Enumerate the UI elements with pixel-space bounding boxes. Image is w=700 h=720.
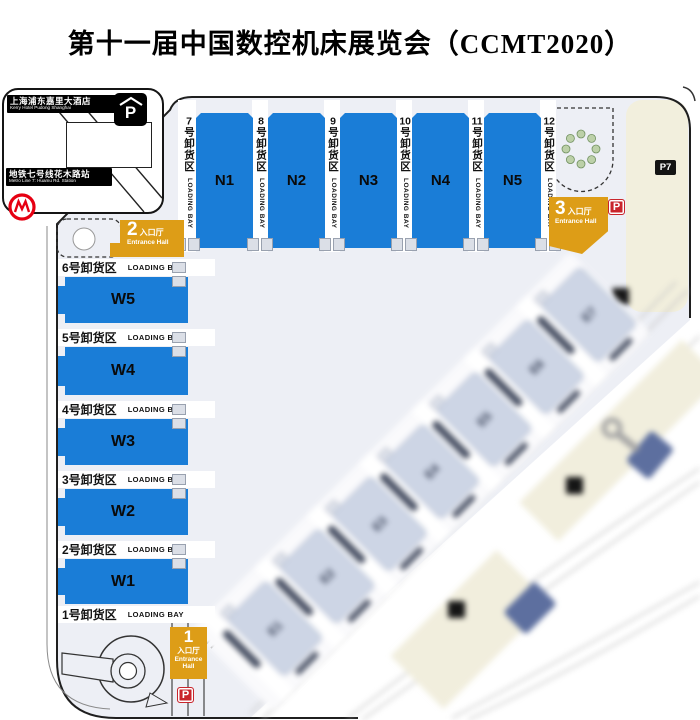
metro-label: 地铁七号线花木路站 Metro Line 7: Huamu Rd. Statio… [6, 168, 112, 186]
hall-label: E1 [265, 618, 285, 638]
hotel-name-en: Kerry Hotel Pudong Shanghai [10, 106, 114, 111]
page-title: 第十一届中国数控机床展览会（CCMT2020） [0, 22, 700, 61]
loading-bay-3: 3号卸货区LOADING BAY [62, 472, 184, 487]
parking-badge-entrance1: P [177, 687, 194, 703]
dock-tab [319, 238, 331, 251]
hall-label: E2 [317, 566, 337, 586]
dock-tab [172, 544, 186, 555]
dock-tab [261, 238, 273, 251]
hall-w5: W5 [58, 277, 188, 323]
dock-tab [172, 276, 186, 287]
loading-bay-4: 4号卸货区LOADING BAY [62, 402, 184, 417]
loading-bay-9: 9号卸货区LOADING BAY [325, 116, 341, 228]
dock-tab [172, 332, 186, 343]
dock-tab [172, 474, 186, 485]
dock-tab [172, 488, 186, 499]
hall-n1: N1 [196, 113, 253, 248]
hall-w1: W1 [58, 559, 188, 604]
hall-n2: N2 [268, 113, 325, 248]
hotel-metro-legend: 上海浦东嘉里大酒店 Kerry Hotel Pudong Shanghai P … [2, 88, 164, 214]
dock-tab [405, 238, 417, 251]
blurred-parking-sign [566, 477, 583, 494]
hotel-building [66, 122, 152, 168]
parking-letter: P [125, 104, 136, 121]
entrance-hall-2: 2入口厅 Entrance Hall [120, 220, 184, 257]
entrance-hall-1: 1 入口厅 Entrance Hall [170, 627, 207, 679]
hall-n3: N3 [340, 113, 397, 248]
hall-w2: W2 [58, 489, 188, 535]
loading-bay-11: 11号卸货区LOADING BAY [469, 116, 485, 228]
hall-label: E4 [422, 461, 442, 481]
dock-tab [188, 238, 200, 251]
loading-bay-10: 10号卸货区LOADING BAY [397, 116, 413, 228]
loading-bay-7: 7号卸货区LOADING BAY [181, 116, 197, 228]
shanghai-metro-logo [7, 192, 37, 222]
hall-label: E3 [370, 514, 390, 534]
loading-bay-8: 8号卸货区LOADING BAY [253, 116, 269, 228]
ramp-loop-icon [598, 412, 644, 460]
hall-n4: N4 [412, 113, 469, 248]
dock-tab [172, 558, 186, 569]
parking-badge-p7: P7 [655, 160, 676, 175]
hotel-label: 上海浦东嘉里大酒店 Kerry Hotel Pudong Shanghai [7, 95, 117, 113]
blurred-parking-sign [448, 601, 465, 618]
dock-tab [172, 262, 186, 273]
dock-tab [333, 238, 345, 251]
loading-bay-5: 5号卸货区LOADING BAY [62, 330, 184, 345]
dock-tab [172, 346, 186, 357]
loading-bay-1: 1号卸货区LOADING BAY [62, 607, 184, 622]
parking-badge-entrance3: P [608, 199, 625, 215]
dock-tab [477, 238, 489, 251]
hall-w4: W4 [58, 347, 188, 395]
hall-n5: N5 [484, 113, 541, 248]
hall-label: E5 [474, 409, 494, 429]
loading-bay-2: 2号卸货区LOADING BAY [62, 542, 184, 557]
metro-name-en: Metro Line 7: Huamu Rd. Station [9, 179, 109, 184]
hall-label: E6 [527, 357, 547, 377]
dock-tab [172, 418, 186, 429]
hall-label: E7 [579, 304, 599, 324]
dock-tab [463, 238, 475, 251]
dock-tab [391, 238, 403, 251]
parking-sign-icon: P [114, 93, 147, 126]
loading-bay-6: 6号卸货区LOADING BAY [62, 260, 184, 275]
dock-tab [247, 238, 259, 251]
dock-tab [535, 238, 547, 251]
dock-tab [172, 404, 186, 415]
hall-w3: W3 [58, 419, 188, 465]
